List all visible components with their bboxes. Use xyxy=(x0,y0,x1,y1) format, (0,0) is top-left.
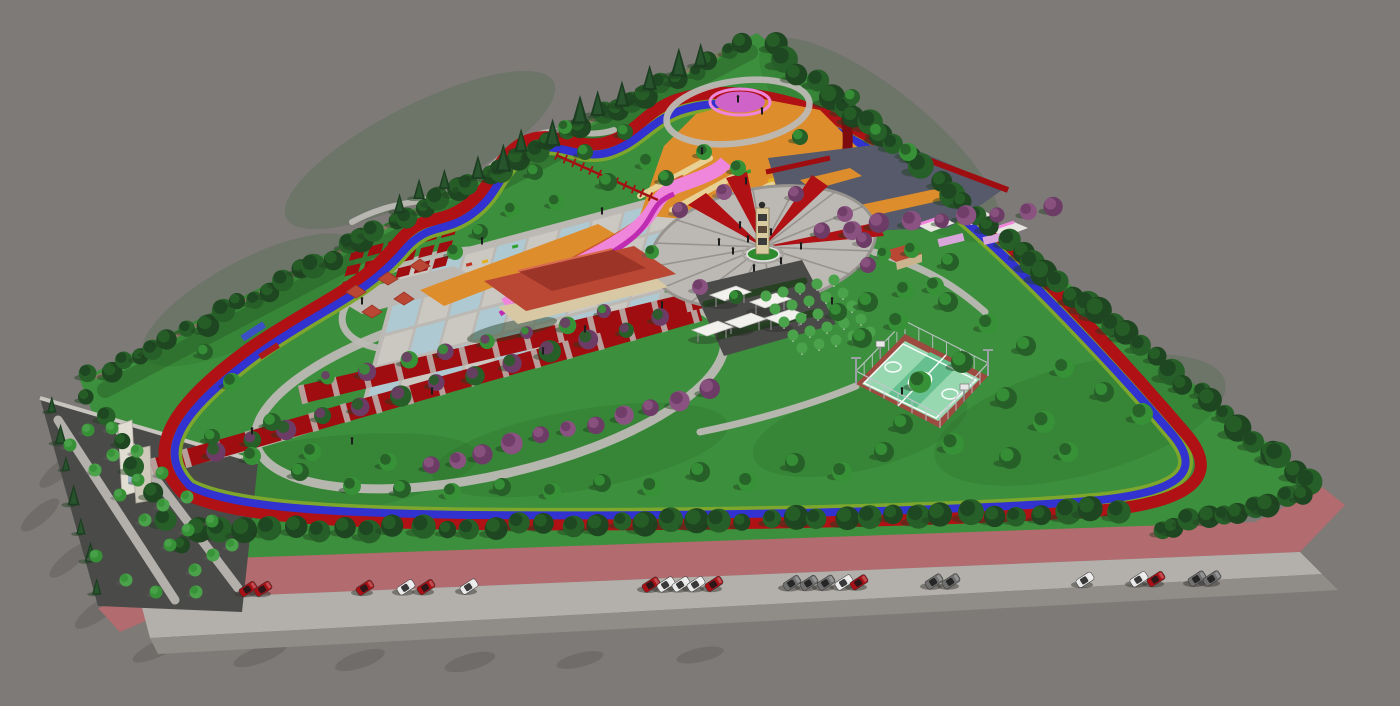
tree-highlight xyxy=(502,434,515,447)
tree-highlight xyxy=(870,124,881,135)
tree-highlight xyxy=(1032,506,1044,518)
tree-highlight xyxy=(640,154,651,165)
person xyxy=(584,325,587,332)
tree-highlight xyxy=(189,564,197,572)
tree-highlight xyxy=(561,422,571,432)
person-body xyxy=(542,350,544,355)
tree-highlight xyxy=(884,506,896,518)
tree-highlight xyxy=(996,388,1009,401)
tree-highlight xyxy=(144,483,156,495)
tree-highlight xyxy=(1179,509,1192,522)
person-head xyxy=(901,387,904,390)
tree-highlight xyxy=(990,208,999,217)
tree-highlight xyxy=(352,398,363,409)
tree-highlight xyxy=(614,513,625,524)
tree-highlight xyxy=(528,165,538,175)
tree-highlight xyxy=(310,522,323,535)
tree-highlight xyxy=(1045,198,1057,210)
person-body xyxy=(770,231,772,236)
tree-highlight xyxy=(730,291,738,299)
person-body xyxy=(601,210,603,215)
person-head xyxy=(542,347,545,350)
tree-highlight xyxy=(106,422,114,430)
tree-highlight xyxy=(939,293,951,305)
person-head xyxy=(753,264,756,267)
tree-highlight xyxy=(870,214,882,226)
sapling xyxy=(814,339,825,350)
tree-highlight xyxy=(616,406,628,418)
tree-highlight xyxy=(473,225,483,235)
person-head xyxy=(251,427,254,430)
person xyxy=(745,177,748,184)
tree-highlight xyxy=(1257,495,1271,509)
person-head xyxy=(745,177,748,180)
tree-highlight xyxy=(731,161,741,171)
tree-highlight xyxy=(927,278,938,289)
tree-highlight xyxy=(429,375,439,385)
tree-highlight xyxy=(359,521,373,535)
tree-highlight xyxy=(908,506,923,521)
tree-highlight xyxy=(1103,314,1117,328)
tree-highlight xyxy=(594,475,605,486)
loop-garden-circle xyxy=(715,92,765,113)
tree-highlight xyxy=(1160,360,1176,376)
tree-highlight xyxy=(786,454,798,466)
person-body xyxy=(481,240,483,245)
tree-highlight xyxy=(504,355,516,367)
tree-highlight xyxy=(598,305,606,313)
tree-highlight xyxy=(1021,204,1031,214)
tree-highlight xyxy=(643,478,655,490)
tree-highlight xyxy=(402,352,412,362)
tree-highlight xyxy=(833,463,845,475)
person xyxy=(601,207,604,214)
tree-highlight xyxy=(660,508,675,523)
tree-highlight xyxy=(1000,448,1013,461)
person-head xyxy=(739,221,742,224)
sapling xyxy=(788,330,799,341)
person-body xyxy=(745,180,747,185)
tree-highlight xyxy=(264,414,275,425)
sapling xyxy=(822,322,833,333)
tree-highlight xyxy=(321,371,329,379)
sapling xyxy=(761,291,772,302)
person xyxy=(661,301,664,308)
tree-highlight xyxy=(861,258,871,268)
tree-highlight xyxy=(708,510,722,524)
person-head xyxy=(747,235,750,238)
sapling xyxy=(770,304,781,315)
tree-highlight xyxy=(1007,508,1019,520)
tree-highlight xyxy=(954,193,965,204)
tree-highlight xyxy=(190,586,198,594)
tree-highlight xyxy=(124,457,137,470)
tree-highlight xyxy=(701,380,713,392)
tree-highlight xyxy=(1109,501,1123,515)
tree-highlight xyxy=(564,517,577,530)
park-render: Park master plan - 3D aerial render xyxy=(0,0,1400,706)
tree-highlight xyxy=(1017,337,1029,349)
tree-highlight xyxy=(857,233,867,243)
tree-highlight xyxy=(903,212,915,224)
tree-highlight xyxy=(98,408,109,419)
tree-highlight xyxy=(226,539,234,547)
person-head xyxy=(761,107,764,110)
tree-highlight xyxy=(979,315,991,327)
tree-highlight xyxy=(382,516,395,529)
tree-highlight xyxy=(894,415,906,427)
tree-highlight xyxy=(659,171,669,181)
person xyxy=(761,107,764,114)
tree-highlight xyxy=(845,90,855,100)
tree-highlight xyxy=(549,195,559,205)
tree-highlight xyxy=(773,47,789,63)
sapling xyxy=(797,343,808,354)
tree-highlight xyxy=(292,464,303,475)
sapling xyxy=(804,296,815,307)
person-body xyxy=(901,390,903,395)
tree-highlight xyxy=(460,520,472,532)
person-body xyxy=(831,300,833,305)
tree-highlight xyxy=(413,516,428,531)
tree-highlight xyxy=(82,424,90,432)
tree-highlight xyxy=(213,300,227,314)
person-head xyxy=(770,228,773,231)
tree-highlight xyxy=(787,65,800,78)
person xyxy=(800,242,803,249)
person-body xyxy=(732,250,734,255)
tree-highlight xyxy=(766,33,780,47)
tree-highlight xyxy=(1086,298,1102,314)
tree-highlight xyxy=(116,352,127,363)
tree-highlight xyxy=(693,280,703,290)
person xyxy=(831,297,834,304)
tree-highlight xyxy=(230,294,240,304)
tree-highlight xyxy=(643,400,653,410)
sapling xyxy=(795,283,806,294)
tree-highlight xyxy=(875,443,887,455)
tree-highlight xyxy=(181,491,189,499)
tree-highlight xyxy=(1174,376,1186,388)
tree-highlight xyxy=(1064,288,1077,301)
tree-highlight xyxy=(440,522,450,532)
tree-highlight xyxy=(182,524,190,532)
person-head xyxy=(701,147,704,150)
tree-highlight xyxy=(224,374,235,385)
person-body xyxy=(800,245,802,250)
tree-highlight xyxy=(1034,412,1047,425)
person xyxy=(361,297,364,304)
person-head xyxy=(431,387,434,390)
person xyxy=(901,387,904,394)
tree-highlight xyxy=(673,203,683,213)
tree-highlight xyxy=(717,185,727,195)
tree-highlight xyxy=(207,549,215,557)
tree-highlight xyxy=(957,206,969,218)
tree-highlight xyxy=(156,510,169,523)
tree-highlight xyxy=(480,335,489,344)
tree-highlight xyxy=(830,304,841,315)
person xyxy=(251,427,254,434)
tree-highlight xyxy=(560,318,571,329)
sapling xyxy=(778,287,789,298)
tree-highlight xyxy=(157,499,165,507)
sapling xyxy=(805,326,816,337)
person-body xyxy=(737,98,739,103)
tree-highlight xyxy=(1278,487,1291,500)
tree-highlight xyxy=(131,445,139,453)
tree-highlight xyxy=(107,449,115,457)
sapling xyxy=(796,313,807,324)
person-head xyxy=(584,325,587,328)
tree-highlight xyxy=(438,344,448,354)
tree-highlight xyxy=(933,172,946,185)
tree-highlight xyxy=(935,214,944,223)
tree-highlight xyxy=(380,454,391,465)
tree-highlight xyxy=(1057,500,1073,516)
tree-highlight xyxy=(853,329,865,341)
tree-highlight xyxy=(646,246,654,254)
tree-highlight xyxy=(273,271,286,284)
tree-highlight xyxy=(960,500,976,516)
person-body xyxy=(747,238,749,243)
tree-highlight xyxy=(494,479,505,490)
sapling xyxy=(829,275,840,286)
tree-highlight xyxy=(1032,261,1048,277)
tree-highlight xyxy=(258,517,273,532)
person-head xyxy=(780,257,783,260)
tree-highlight xyxy=(315,408,325,418)
tree-highlight xyxy=(156,467,164,475)
tree-highlight xyxy=(521,327,529,335)
tree-highlight xyxy=(900,144,911,155)
tree-highlight xyxy=(838,207,848,217)
tree-highlight xyxy=(336,518,349,531)
tree-highlight xyxy=(897,282,908,293)
person-body xyxy=(753,267,755,272)
tree-highlight xyxy=(325,252,337,264)
tree-highlight xyxy=(164,539,172,547)
tree-highlight xyxy=(789,187,799,197)
clock-tower-top xyxy=(759,202,765,208)
tree-highlight xyxy=(1055,359,1067,371)
tree-highlight xyxy=(942,254,953,265)
person xyxy=(718,238,721,245)
person-body xyxy=(701,150,703,155)
tree-highlight xyxy=(486,518,500,532)
tree-highlight xyxy=(424,457,434,467)
tree-highlight xyxy=(985,507,998,520)
tree-highlight xyxy=(929,503,944,518)
tree-highlight xyxy=(1286,462,1300,476)
tree-highlight xyxy=(198,345,208,355)
tree-highlight xyxy=(686,509,701,524)
person xyxy=(737,95,740,102)
tree-highlight xyxy=(302,255,317,270)
tree-highlight xyxy=(359,364,370,375)
tree-highlight xyxy=(588,515,601,528)
person-head xyxy=(831,297,834,300)
person xyxy=(431,387,434,394)
tree-highlight xyxy=(466,367,478,379)
tree-highlight xyxy=(90,550,98,558)
tree-highlight xyxy=(1095,383,1107,395)
tree-highlight xyxy=(120,574,128,582)
sapling xyxy=(779,317,790,328)
tree-highlight xyxy=(473,445,485,457)
tree-highlight xyxy=(158,330,170,342)
tree-highlight xyxy=(233,518,249,534)
person-head xyxy=(661,301,664,304)
tree-highlight xyxy=(364,221,377,234)
tree-highlight xyxy=(1295,487,1307,499)
person xyxy=(770,228,773,235)
person xyxy=(747,235,750,242)
tree-highlight xyxy=(671,392,683,404)
sapling xyxy=(812,279,823,290)
tree-highlight xyxy=(634,513,649,528)
person xyxy=(780,257,783,264)
tree-highlight xyxy=(859,111,874,126)
sapling xyxy=(787,300,798,311)
tree-highlight xyxy=(620,323,629,332)
tree-highlight xyxy=(859,506,873,520)
person xyxy=(732,247,735,254)
tree-highlight xyxy=(691,463,703,475)
person xyxy=(481,237,484,244)
tree-highlight xyxy=(793,130,803,140)
tree-highlight xyxy=(245,432,256,443)
tree-highlight xyxy=(652,309,663,320)
tree-highlight xyxy=(943,434,956,447)
tree-highlight xyxy=(843,107,856,120)
tree-highlight xyxy=(448,245,458,255)
tree-highlight xyxy=(815,223,825,233)
tree-highlight xyxy=(64,439,72,447)
person-body xyxy=(739,224,741,229)
tree-highlight xyxy=(450,453,460,463)
park-render-stage: Park master plan - 3D aerial render xyxy=(0,0,1400,706)
person-body xyxy=(361,300,363,305)
tree-highlight xyxy=(1217,406,1228,417)
tree-highlight xyxy=(534,514,547,527)
tree-highlight xyxy=(244,448,255,459)
person-body xyxy=(761,110,763,115)
tree-highlight xyxy=(286,517,299,530)
tree-highlight xyxy=(206,515,214,523)
person-head xyxy=(732,247,735,250)
tree-highlight xyxy=(1059,443,1071,455)
tree-highlight xyxy=(505,203,515,213)
tree-highlight xyxy=(878,248,886,256)
tree-highlight xyxy=(578,145,588,155)
tree-highlight xyxy=(1244,432,1257,445)
tree-highlight xyxy=(533,427,543,437)
person-body xyxy=(584,328,586,333)
tree-highlight xyxy=(1115,321,1130,336)
sapling xyxy=(831,335,842,346)
tree-highlight xyxy=(304,444,315,455)
tree-highlight xyxy=(205,430,215,440)
person-body xyxy=(351,440,353,445)
tree-highlight xyxy=(618,125,628,135)
tree-highlight xyxy=(180,321,190,331)
tree-highlight xyxy=(739,473,751,485)
person-body xyxy=(718,241,720,246)
tree-highlight xyxy=(808,71,821,84)
tree-highlight xyxy=(150,586,158,594)
tree-highlight xyxy=(600,174,611,185)
tree-highlight xyxy=(114,489,122,497)
tree-highlight xyxy=(89,464,97,472)
sapling xyxy=(813,309,824,320)
person xyxy=(739,221,742,228)
tree-highlight xyxy=(115,434,125,444)
tree-highlight xyxy=(1149,348,1160,359)
tree-highlight xyxy=(905,243,915,253)
sapling xyxy=(821,292,832,303)
person-body xyxy=(431,390,433,395)
tree-highlight xyxy=(80,365,91,376)
person-head xyxy=(351,437,354,440)
tree-highlight xyxy=(544,484,555,495)
tree-highlight xyxy=(733,34,745,46)
tree-highlight xyxy=(132,474,140,482)
tree-highlight xyxy=(559,121,567,129)
tree-highlight xyxy=(444,484,455,495)
sapling xyxy=(838,288,849,299)
tree-highlight xyxy=(1199,507,1213,521)
person-head xyxy=(718,238,721,241)
tree-highlight xyxy=(844,222,855,233)
tree-highlight xyxy=(821,86,837,102)
tree-highlight xyxy=(1000,230,1013,243)
tree-highlight xyxy=(344,478,355,489)
sapling xyxy=(856,314,867,325)
tree-highlight xyxy=(394,481,405,492)
tree-highlight xyxy=(1048,272,1061,285)
tree-highlight xyxy=(588,418,598,428)
tree-highlight xyxy=(1226,416,1242,432)
tree-highlight xyxy=(1199,389,1213,403)
person xyxy=(351,437,354,444)
tree-highlight xyxy=(510,513,523,526)
person-head xyxy=(800,242,803,245)
tree-highlight xyxy=(910,372,923,385)
person-body xyxy=(251,430,253,435)
tree-highlight xyxy=(79,390,88,399)
tree-highlight xyxy=(941,183,957,199)
tree-highlight xyxy=(785,506,800,521)
tree-highlight xyxy=(859,293,871,305)
tree-highlight xyxy=(1079,497,1094,512)
person xyxy=(753,264,756,271)
tree-highlight xyxy=(837,508,851,522)
person-body xyxy=(780,260,782,265)
tree-highlight xyxy=(391,386,404,399)
tree-highlight xyxy=(1131,336,1144,349)
tree-highlight xyxy=(139,514,147,522)
tent-shadow xyxy=(688,336,720,344)
tree-highlight xyxy=(889,313,901,325)
tree-highlight xyxy=(764,511,775,522)
person-head xyxy=(361,297,364,300)
tree-highlight xyxy=(1266,443,1282,459)
tree-highlight xyxy=(1297,470,1313,486)
tree-highlight xyxy=(1228,504,1241,517)
person xyxy=(542,347,545,354)
person xyxy=(701,147,704,154)
